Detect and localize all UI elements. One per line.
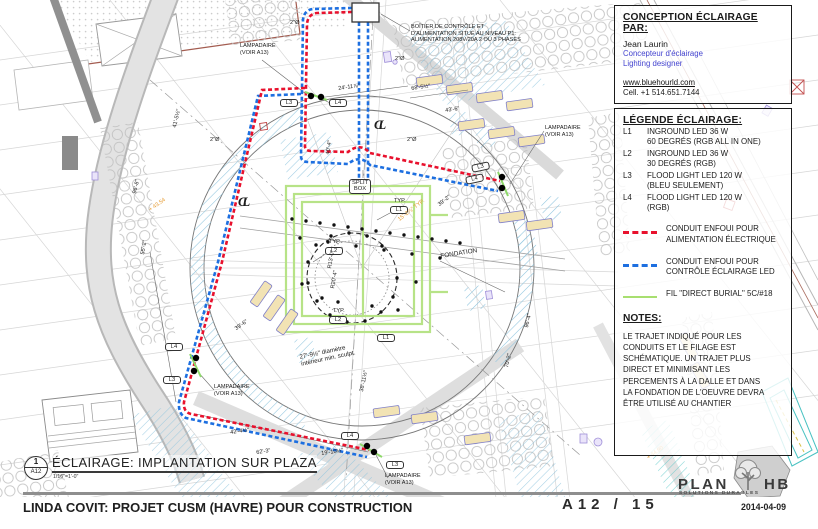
legend-item-l1: L1 INGROUND LED 36 W 60 DEGRÉS (RGB ALL … [623,127,783,148]
conception-title: CONCEPTION ÉCLAIRAGE PAR: [623,12,783,34]
legend-line: 60 DEGRÉS (RGB ALL IN ONE) [647,137,761,147]
notes-title: NOTES: [623,313,783,324]
legend-code: L2 [623,149,647,170]
legend-line: INGROUND LED 36 W [647,149,728,159]
direct-burial-wires [286,186,448,332]
legend-code: L4 [623,193,647,214]
legend-line: FLOOD LIGHT LED 120 W [647,171,742,181]
blue-dashed-swatch [623,264,657,267]
legend-line: (RGB) [647,203,742,213]
conduit-power-label: CONDUIT ENFOUI POUR ALIMENTATION ÉLECTRI… [666,224,776,245]
legend-title: LÉGENDE ÉCLAIRAGE: [623,115,783,126]
tree-logo-icon [733,458,763,492]
conduit-power-west [184,88,369,450]
riser-box [352,3,379,22]
scale-note: 1/16"=1'-0" [53,474,78,480]
designer-name: Jean Laurin [623,39,783,49]
legend-line: 30 DEGRÉS (RGB) [647,159,728,169]
inground-light-dots [290,217,461,323]
figure-sheet-ref: A12 [25,467,47,477]
issue-date: 2014-04-09 [741,502,786,512]
logo-subtitle: SOLUTIONS DURABLES [679,491,759,496]
drawing-sheet: BOÎTIER DE CONTRÔLE ET D'ALIMENTATION SI… [0,0,818,529]
designer-role-fr: Concepteur d'éclairage [623,49,783,59]
legend-item-l4: L4 FLOOD LIGHT LED 120 W (RGB) [623,193,783,214]
titleblock-divider [23,492,741,495]
legend-line: (BLEU SEULEMENT) [647,181,742,191]
website-link[interactable]: www.bluehourld.com [623,78,783,87]
logo-hb-text: HB [764,476,791,493]
project-name: LINDA COVIT: PROJET CUSM (HAVRE) POUR CO… [23,500,412,515]
notes-body: LE TRAJET INDIQUÉ POUR LES CONDUITS ET L… [623,331,783,410]
legend-conduit-power: CONDUIT ENFOUI POUR ALIMENTATION ÉLECTRI… [623,224,783,245]
green-solid-swatch [623,296,657,298]
figure-bubble: 1 A12 [24,456,48,480]
drawing-title: ÉCLAIRAGE: IMPLANTATION SUR PLAZA [52,455,317,473]
legend-code: L3 [623,171,647,192]
designer-role-en: Lighting designer [623,59,783,69]
legend-item-l2: L2 INGROUND LED 36 W 30 DEGRÉS (RGB) [623,149,783,170]
red-dashed-swatch [623,231,657,234]
legend-conduit-control: CONDUIT ENFOUI POUR CONTRÔLE ÉCLAIRAGE L… [623,257,783,278]
legend-panel: LÉGENDE ÉCLAIRAGE: L1 INGROUND LED 36 W … [614,108,792,456]
legend-line: INGROUND LED 36 W [647,127,761,137]
legend-line: FLOOD LIGHT LED 120 W [647,193,742,203]
sheet-number: A12 / 15 [562,496,659,513]
direct-burial-label: FIL "DIRECT BURIAL" 5C/#18 [666,289,772,300]
legend-wire-direct-burial: FIL "DIRECT BURIAL" 5C/#18 [623,289,783,300]
conduit-control-label: CONDUIT ENFOUI POUR CONTRÔLE ÉCLAIRAGE L… [666,257,775,278]
legend-code: L1 [623,127,647,148]
phone-number: Cell. +1 514.651.7144 [623,88,783,97]
conception-panel: CONCEPTION ÉCLAIRAGE PAR: Jean Laurin Co… [614,5,792,104]
legend-item-l3: L3 FLOOD LIGHT LED 120 W (BLEU SEULEMENT… [623,171,783,192]
figure-number: 1 [25,457,47,467]
